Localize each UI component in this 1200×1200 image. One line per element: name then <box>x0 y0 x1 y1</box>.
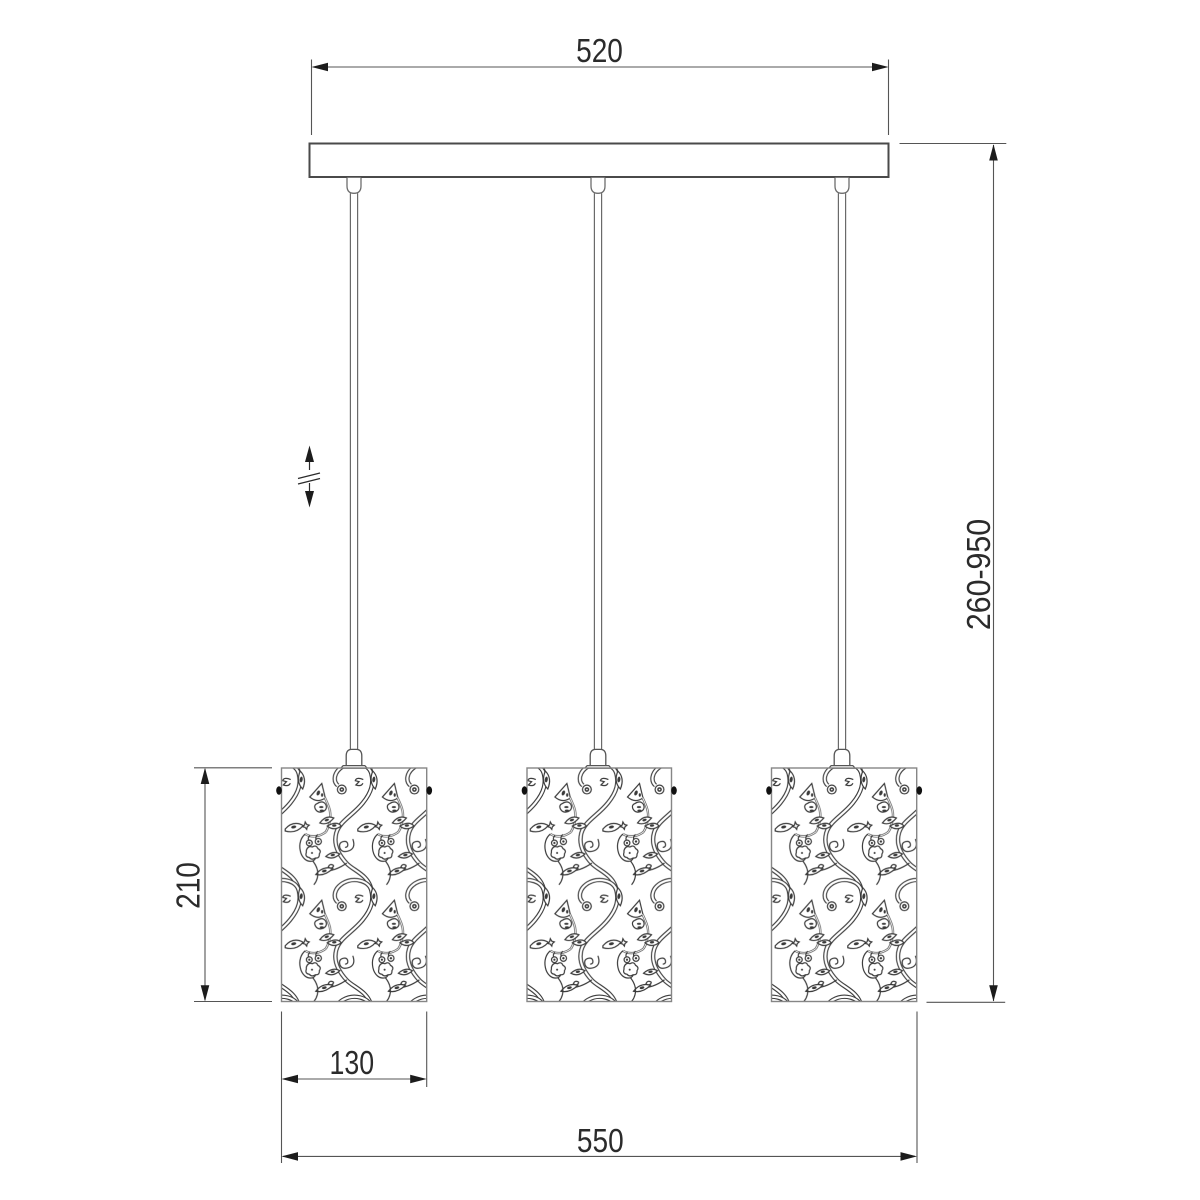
svg-text:520: 520 <box>576 33 623 70</box>
svg-text:210: 210 <box>170 862 207 909</box>
svg-text:260-950: 260-950 <box>960 519 997 630</box>
svg-text:130: 130 <box>330 1046 375 1082</box>
svg-text:550: 550 <box>577 1123 624 1160</box>
